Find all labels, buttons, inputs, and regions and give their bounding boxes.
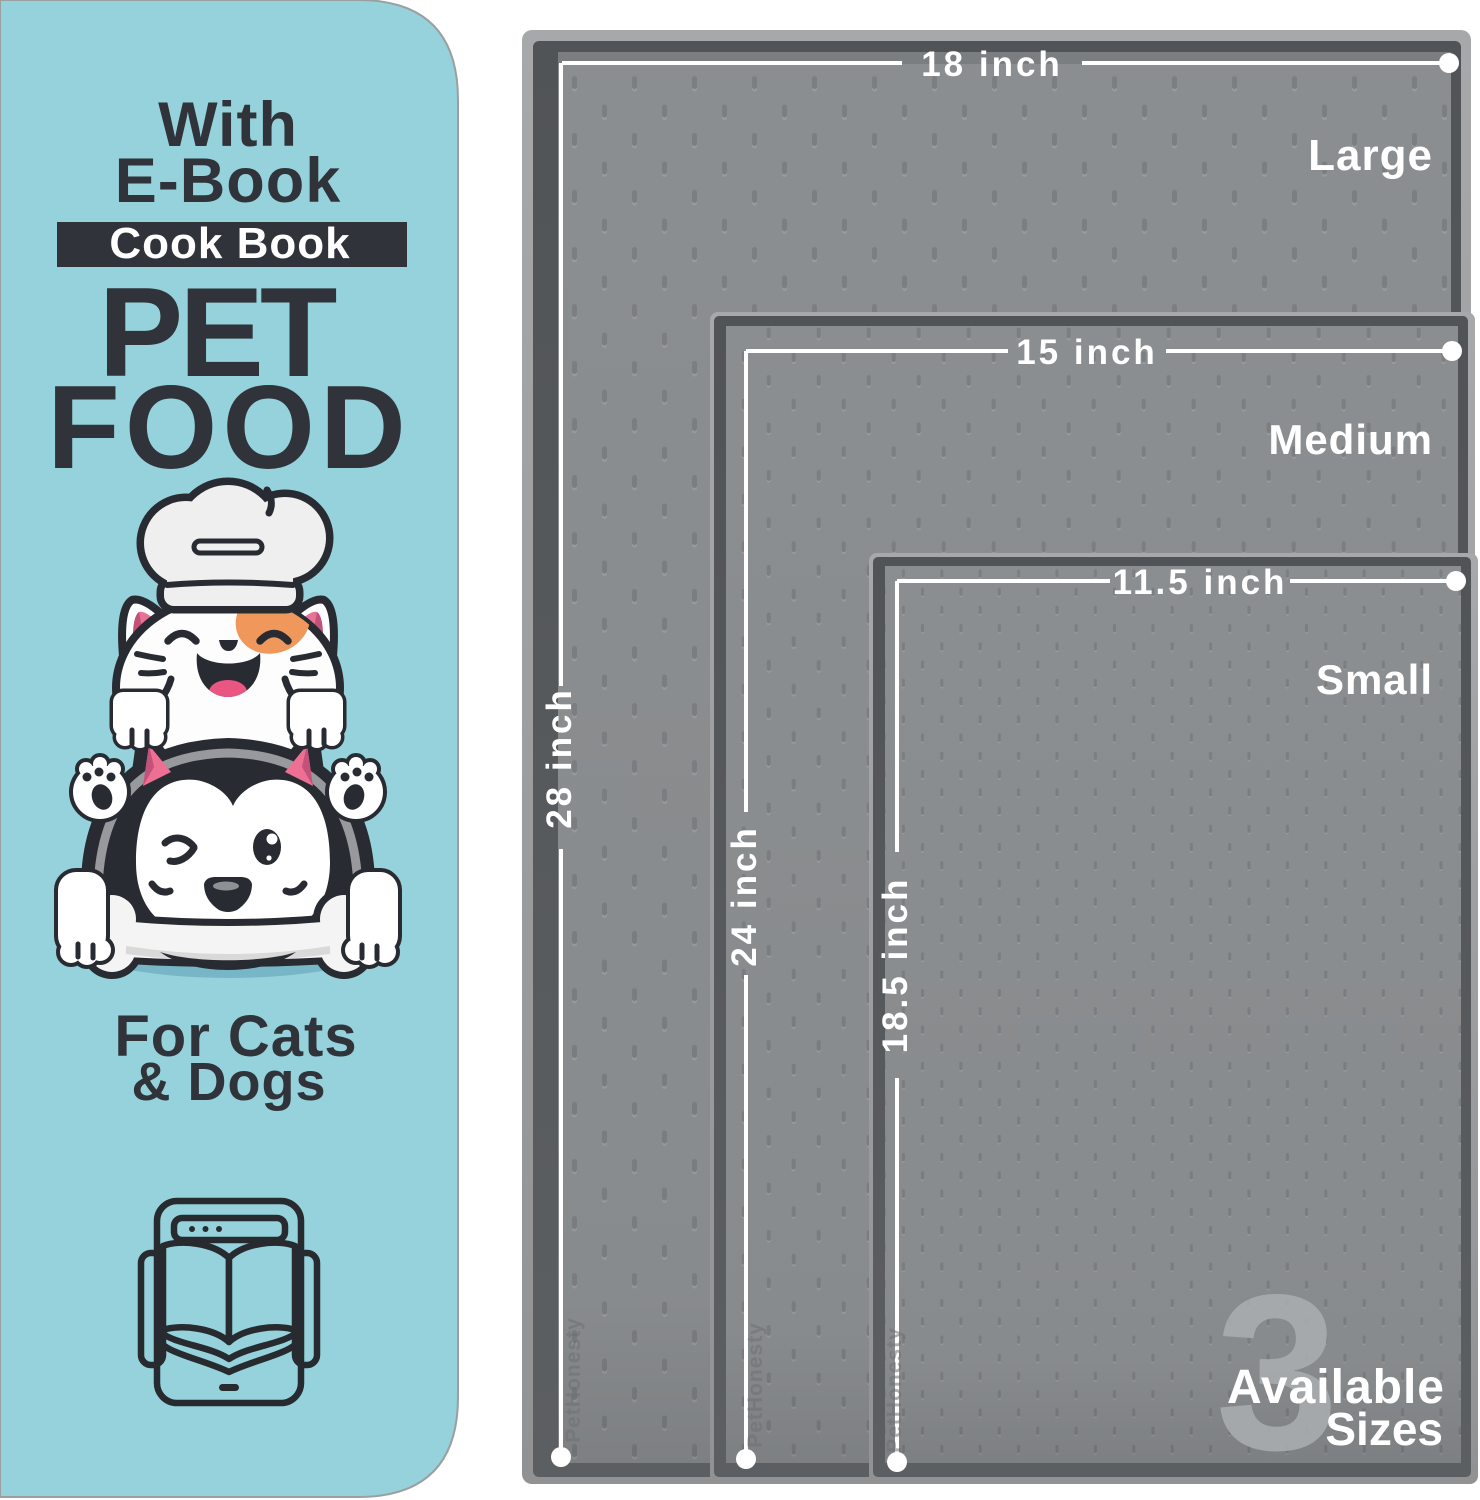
svg-text:PetHonesty: PetHonesty [883,1327,906,1453]
svg-text:PetHonesty: PetHonesty [562,1317,585,1443]
svg-text:Large: Large [1308,131,1433,180]
svg-text:24 inch: 24 inch [725,825,764,967]
svg-text:11.5 inch: 11.5 inch [1113,563,1288,602]
svg-text:18.5 inch: 18.5 inch [876,877,915,1054]
svg-text:28 inch: 28 inch [540,687,579,829]
svg-text:E-Book: E-Book [115,146,342,216]
svg-text:18 inch: 18 inch [921,45,1063,84]
svg-text:Small: Small [1316,656,1433,703]
svg-text:Sizes: Sizes [1325,1403,1443,1455]
svg-text:15 inch: 15 inch [1016,333,1158,372]
svg-text:Medium: Medium [1268,416,1433,463]
svg-text:PetHonesty: PetHonesty [744,1322,767,1448]
svg-text:& Dogs: & Dogs [132,1052,327,1112]
svg-text:FOOD: FOOD [47,361,411,494]
